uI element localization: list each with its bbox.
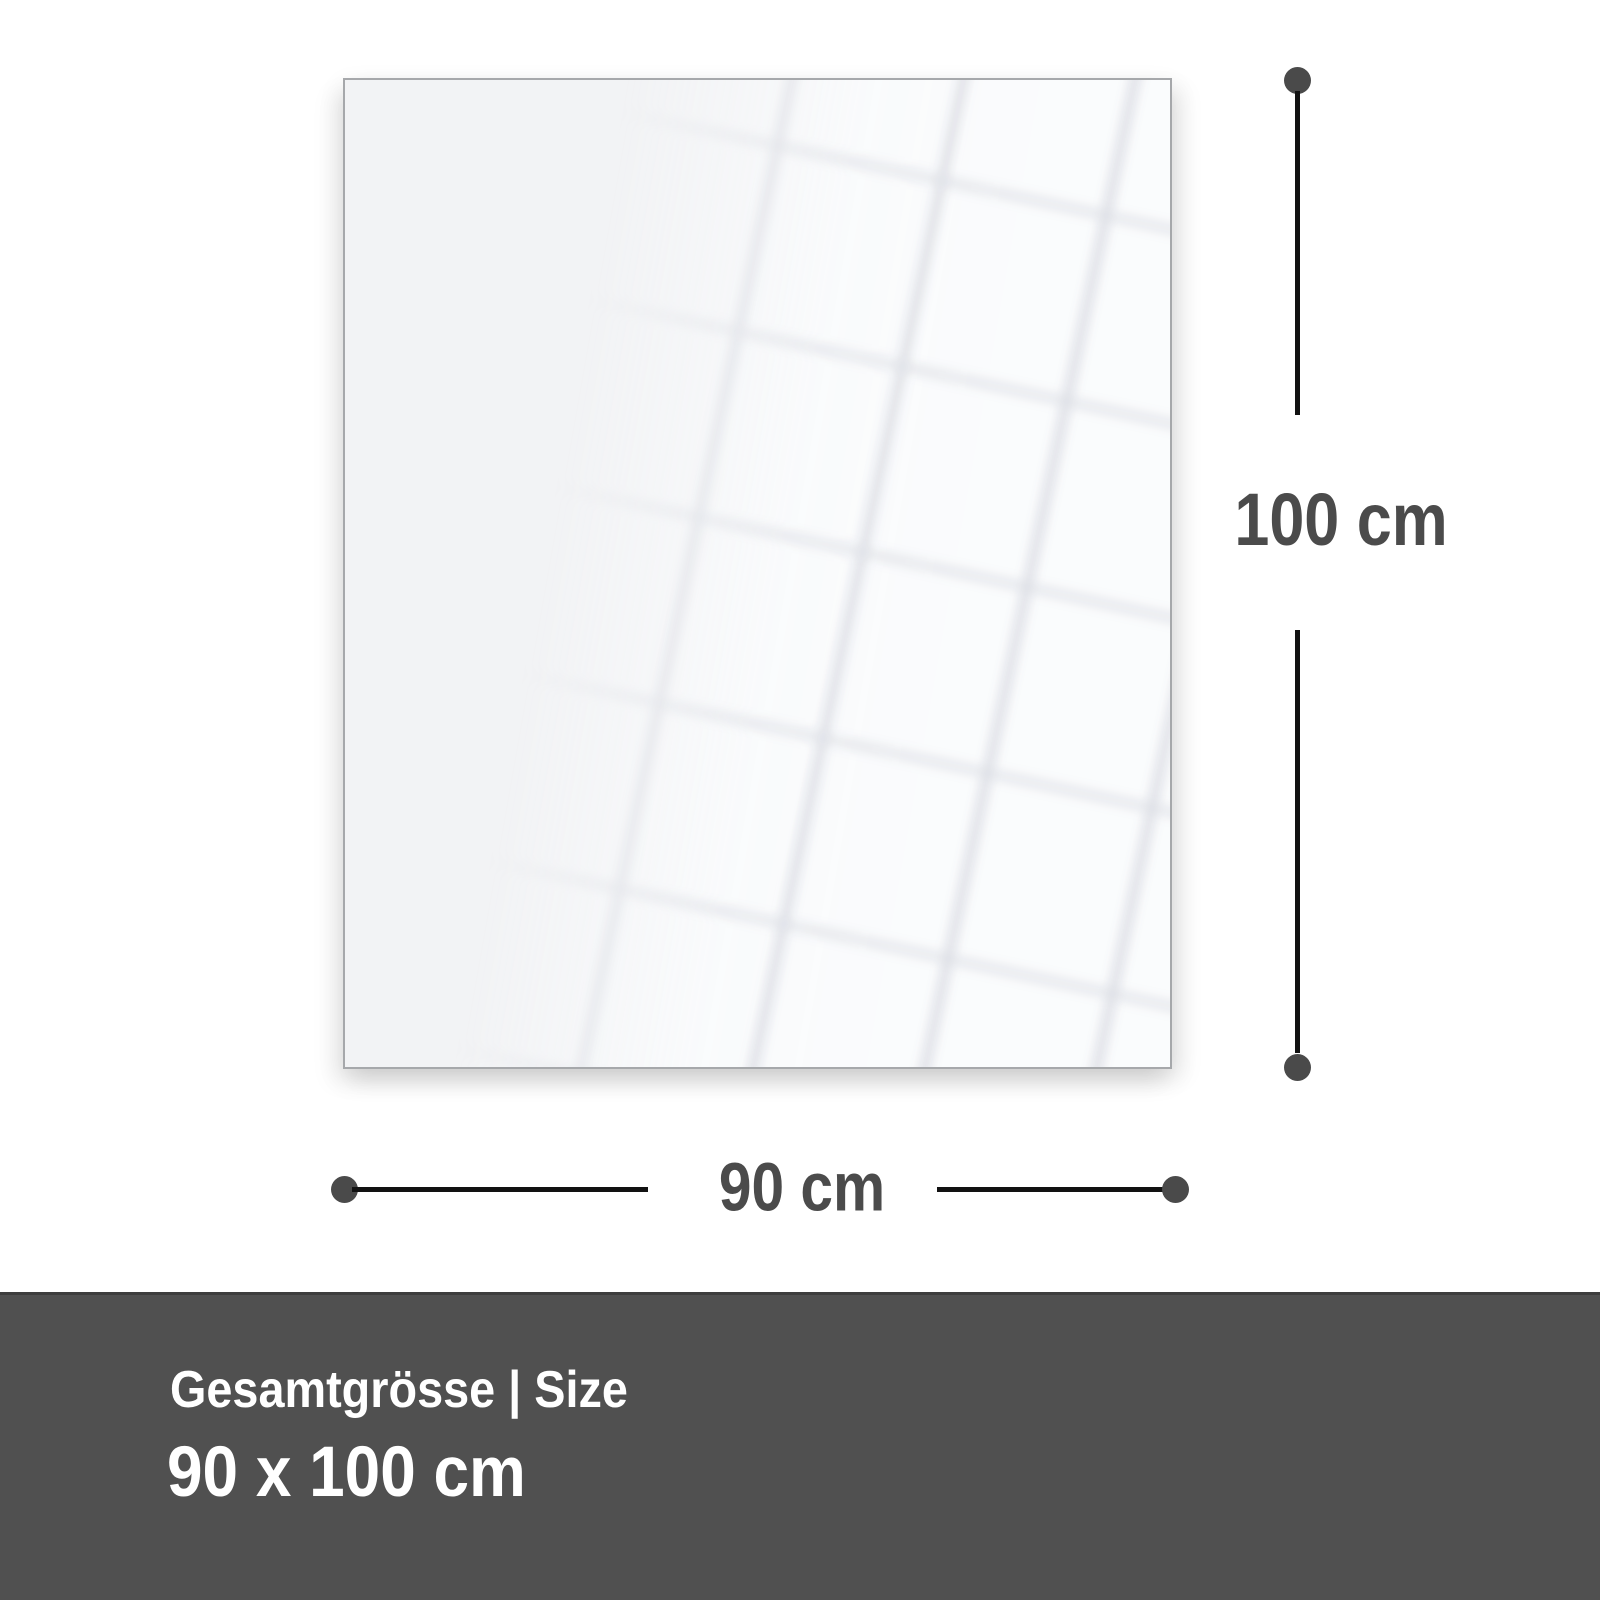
width-dimension-line-right <box>937 1187 1164 1192</box>
width-dimension-label: 90 cm <box>719 1153 885 1222</box>
panel-reflection-grid <box>345 80 1170 1067</box>
product-panel <box>343 78 1172 1069</box>
panel-reflection <box>345 80 1170 1067</box>
height-dimension-label: 100 cm <box>1234 483 1447 557</box>
size-footer-value: 90 x 100 cm <box>167 1437 526 1508</box>
height-dimension-top-dot <box>1284 67 1311 94</box>
height-dimension-line-bottom <box>1295 630 1300 1053</box>
size-footer-heading: Gesamtgrösse | Size <box>170 1364 628 1416</box>
width-dimension-right-dot <box>1162 1176 1189 1203</box>
width-dimension-line-left <box>352 1187 648 1192</box>
product-size-diagram: 100 cm 90 cm Gesamtgrösse | Size 90 x 10… <box>0 0 1600 1600</box>
height-dimension-bottom-dot <box>1284 1054 1311 1081</box>
height-dimension-line-top <box>1295 91 1300 415</box>
